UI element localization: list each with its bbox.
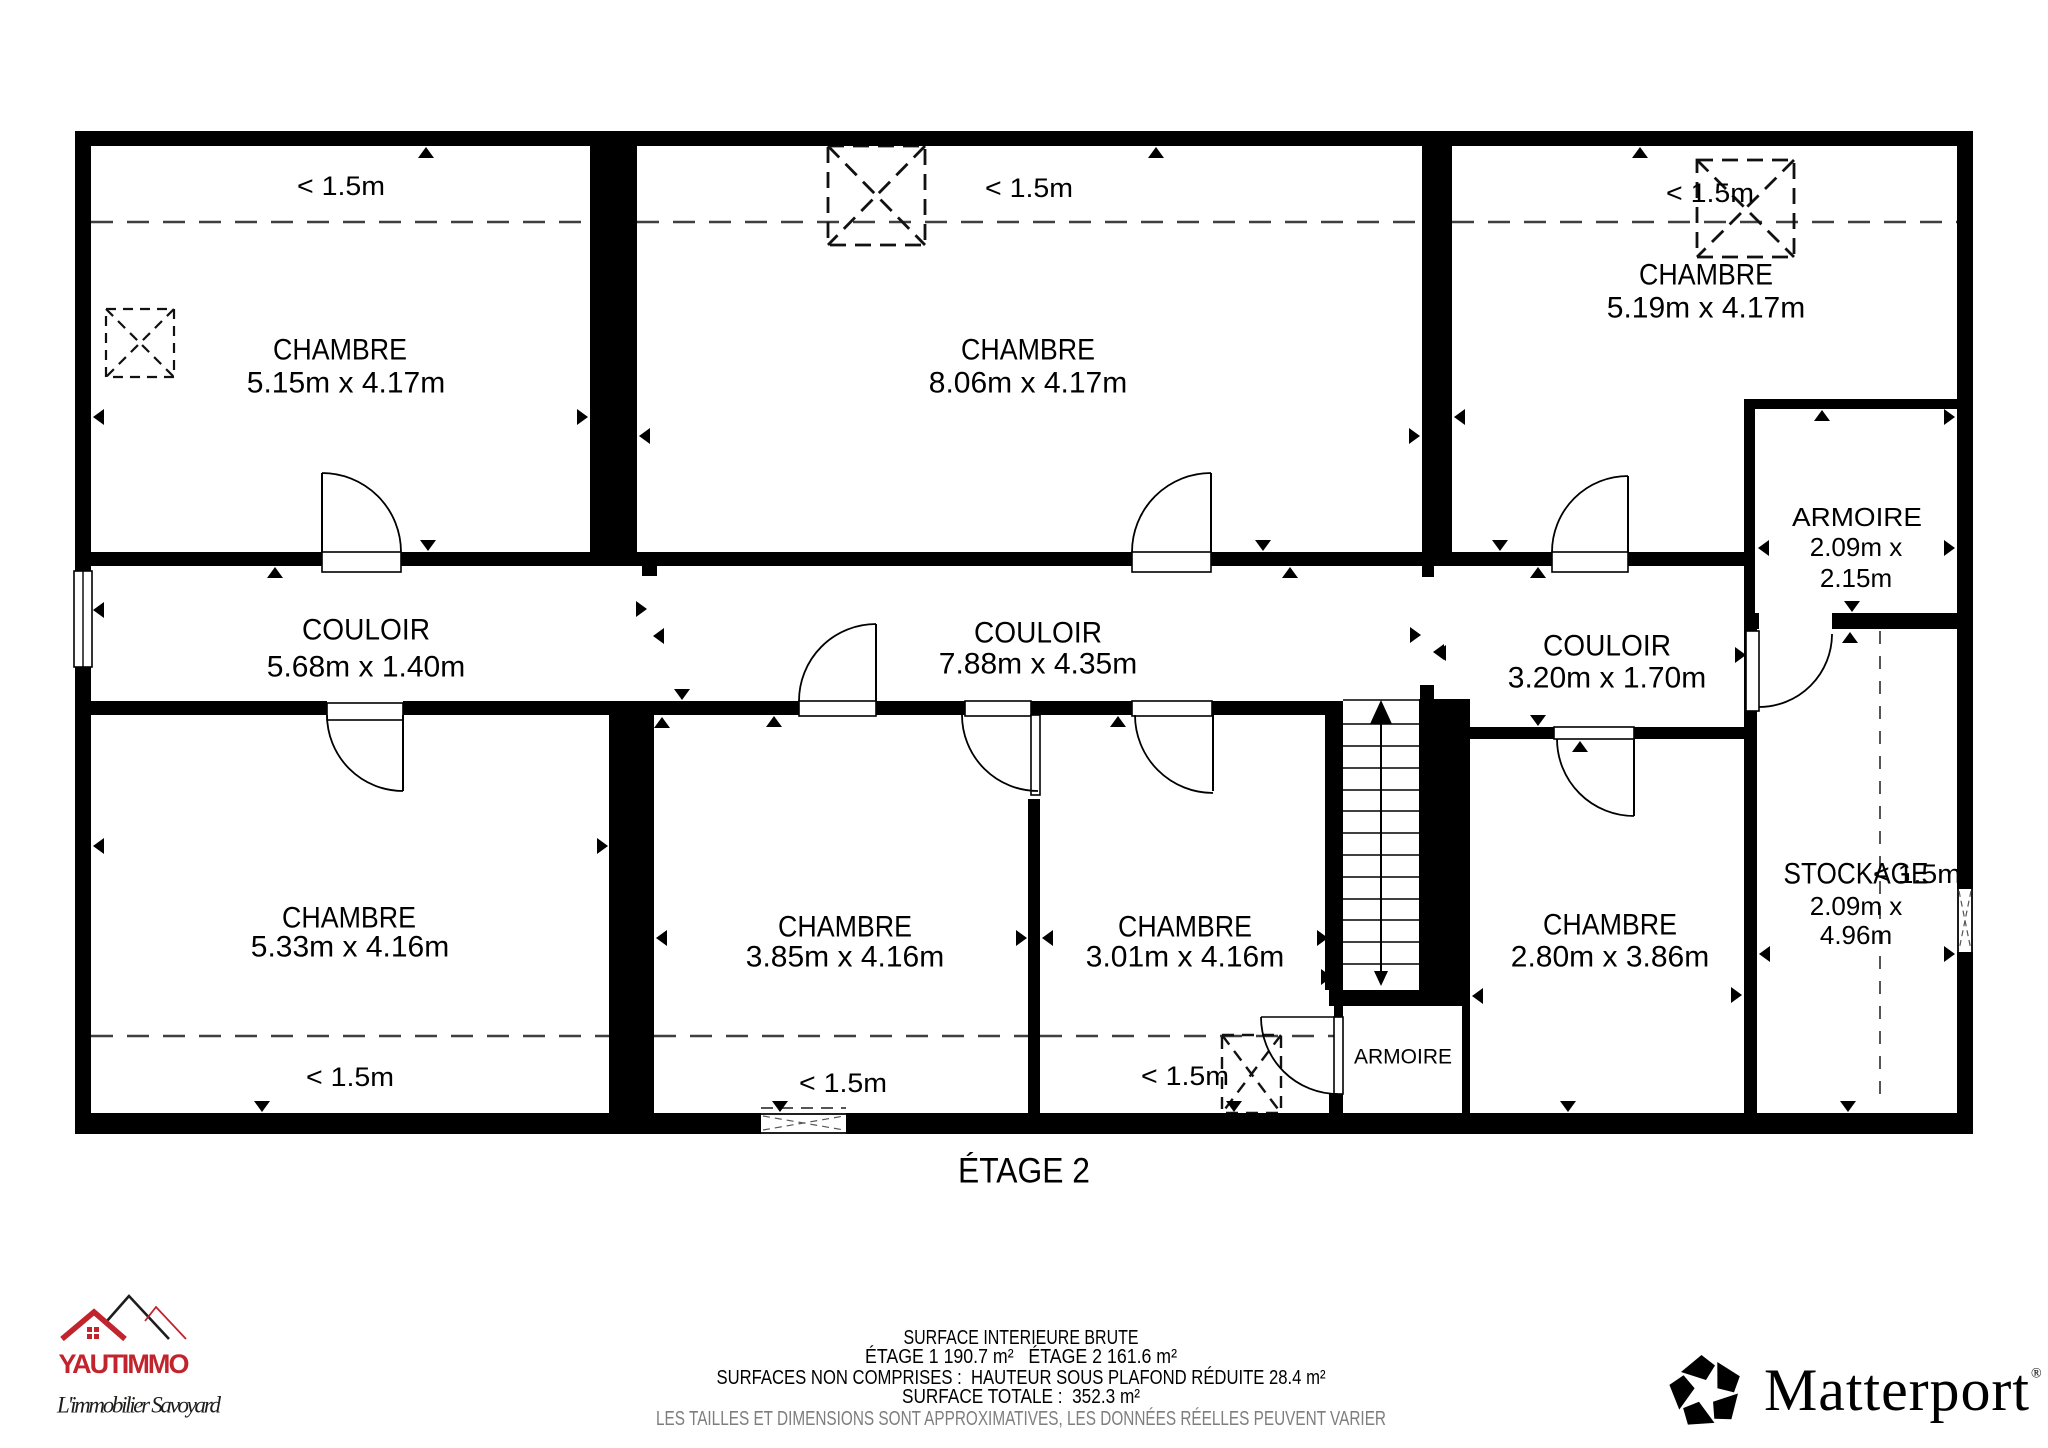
svg-text:Matterport: Matterport: [1764, 1357, 2029, 1423]
svg-text:LES TAILLES ET DIMENSIONS SONT: LES TAILLES ET DIMENSIONS SONT APPROXIMA…: [656, 1407, 1386, 1430]
svg-text:< 1.5m: < 1.5m: [1141, 1061, 1229, 1091]
svg-text:SURFACE TOTALE : 352.3 m²: SURFACE TOTALE : 352.3 m²: [902, 1386, 1140, 1408]
svg-text:< 1.5m: < 1.5m: [985, 173, 1073, 203]
svg-text:CHAMBRE: CHAMBRE: [961, 334, 1095, 367]
svg-text:2.15m: 2.15m: [1820, 563, 1892, 593]
svg-text:CHAMBRE: CHAMBRE: [778, 911, 912, 944]
svg-text:CHAMBRE: CHAMBRE: [1118, 911, 1252, 944]
svg-text:5.33m x 4.16m: 5.33m x 4.16m: [251, 931, 449, 964]
svg-text:8.06m x 4.17m: 8.06m x 4.17m: [929, 367, 1127, 400]
svg-text:< 1.5m: < 1.5m: [799, 1068, 887, 1098]
svg-text:5.68m x 1.40m: 5.68m x 1.40m: [267, 651, 465, 684]
svg-text:< 1.5m: < 1.5m: [1666, 178, 1754, 208]
svg-text:4.96m: 4.96m: [1820, 920, 1892, 950]
svg-text:COULOIR: COULOIR: [1543, 630, 1671, 663]
svg-text:5.19m x 4.17m: 5.19m x 4.17m: [1607, 292, 1805, 325]
svg-text:3.20m x 1.70m: 3.20m x 1.70m: [1508, 662, 1706, 695]
svg-text:CHAMBRE: CHAMBRE: [1639, 259, 1773, 292]
svg-text:®: ®: [2031, 1367, 2042, 1382]
svg-text:5.15m x 4.17m: 5.15m x 4.17m: [247, 367, 445, 400]
svg-text:< 1.5m: < 1.5m: [1873, 859, 1961, 889]
svg-text:< 1.5m: < 1.5m: [306, 1062, 394, 1092]
svg-text:7.88m x 4.35m: 7.88m x 4.35m: [939, 648, 1137, 681]
svg-text:COULOIR: COULOIR: [974, 617, 1102, 650]
svg-text:YAUTIMMO: YAUTIMMO: [59, 1349, 190, 1379]
svg-text:CHAMBRE: CHAMBRE: [1543, 909, 1677, 942]
svg-text:ARMOIRE: ARMOIRE: [1354, 1046, 1452, 1069]
svg-text:CHAMBRE: CHAMBRE: [273, 334, 407, 367]
svg-text:2.09m x: 2.09m x: [1810, 891, 1903, 921]
svg-text:ARMOIRE: ARMOIRE: [1792, 502, 1922, 532]
svg-text:2.80m x 3.86m: 2.80m x 3.86m: [1511, 941, 1709, 974]
svg-text:3.85m x 4.16m: 3.85m x 4.16m: [746, 941, 944, 974]
svg-text:ÉTAGE 2: ÉTAGE 2: [958, 1152, 1090, 1191]
svg-text:ÉTAGE 1 190.7 m² ÉTAGE 2 161: ÉTAGE 1 190.7 m² ÉTAGE 2 161.6 m²: [865, 1345, 1177, 1368]
svg-text:L'immobilier Savoyard: L'immobilier Savoyard: [56, 1393, 222, 1418]
svg-text:< 1.5m: < 1.5m: [297, 171, 385, 201]
svg-text:COULOIR: COULOIR: [302, 614, 430, 647]
svg-text:3.01m x 4.16m: 3.01m x 4.16m: [1086, 941, 1284, 974]
svg-text:2.09m x: 2.09m x: [1810, 532, 1903, 562]
